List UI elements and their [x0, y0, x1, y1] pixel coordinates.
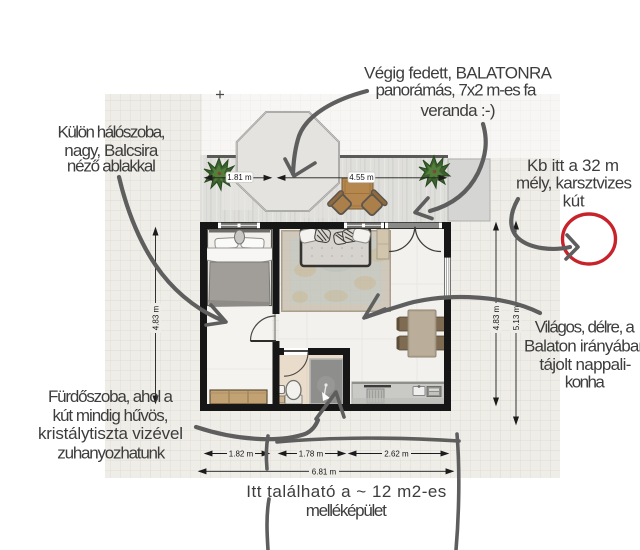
svg-text:tájolt nappali-: tájolt nappali-: [539, 355, 631, 374]
svg-text:2.62 m: 2.62 m: [384, 450, 409, 459]
svg-text:Balaton irányában: Balaton irányában: [524, 336, 640, 355]
svg-text:Itt található a ~ 12 m2-es: Itt található a ~ 12 m2-es: [246, 482, 446, 501]
svg-text:Világos, délre, a: Világos, délre, a: [535, 318, 636, 337]
svg-text:6.81 m: 6.81 m: [312, 468, 337, 477]
svg-text:1.78 m: 1.78 m: [299, 450, 324, 459]
svg-text:kút: kút: [563, 191, 585, 210]
svg-text:kristálytiszta vizével: kristálytiszta vizével: [38, 424, 183, 443]
svg-text:néző ablakkal: néző ablakkal: [67, 156, 156, 175]
svg-text:Fürdőszoba, ahol a: Fürdőszoba, ahol a: [48, 387, 174, 406]
svg-text:mély, karsztvizes: mély, karsztvizes: [516, 174, 632, 193]
svg-text:4.83 m: 4.83 m: [152, 305, 161, 330]
svg-text:4.55 m: 4.55 m: [349, 173, 374, 182]
svg-text:melléképület: melléképület: [306, 501, 387, 520]
svg-text:zuhanyozhatunk: zuhanyozhatunk: [57, 443, 166, 462]
svg-text:kút mindig hűvös,: kút mindig hűvös,: [53, 406, 169, 425]
svg-text:4.83 m: 4.83 m: [492, 305, 501, 330]
svg-text:1.81 m: 1.81 m: [227, 173, 252, 182]
svg-text:panorámás, 7x2 m-es fa: panorámás, 7x2 m-es fa: [376, 81, 538, 100]
svg-text:1.82 m: 1.82 m: [229, 450, 254, 459]
svg-text:Kb itt a 32 m: Kb itt a 32 m: [527, 156, 619, 175]
svg-text:veranda :-): veranda :-): [421, 101, 496, 120]
svg-text:Külön hálószoba,: Külön hálószoba,: [58, 122, 166, 141]
svg-text:5.13 m: 5.13 m: [512, 305, 521, 330]
svg-text:konha: konha: [565, 372, 606, 391]
